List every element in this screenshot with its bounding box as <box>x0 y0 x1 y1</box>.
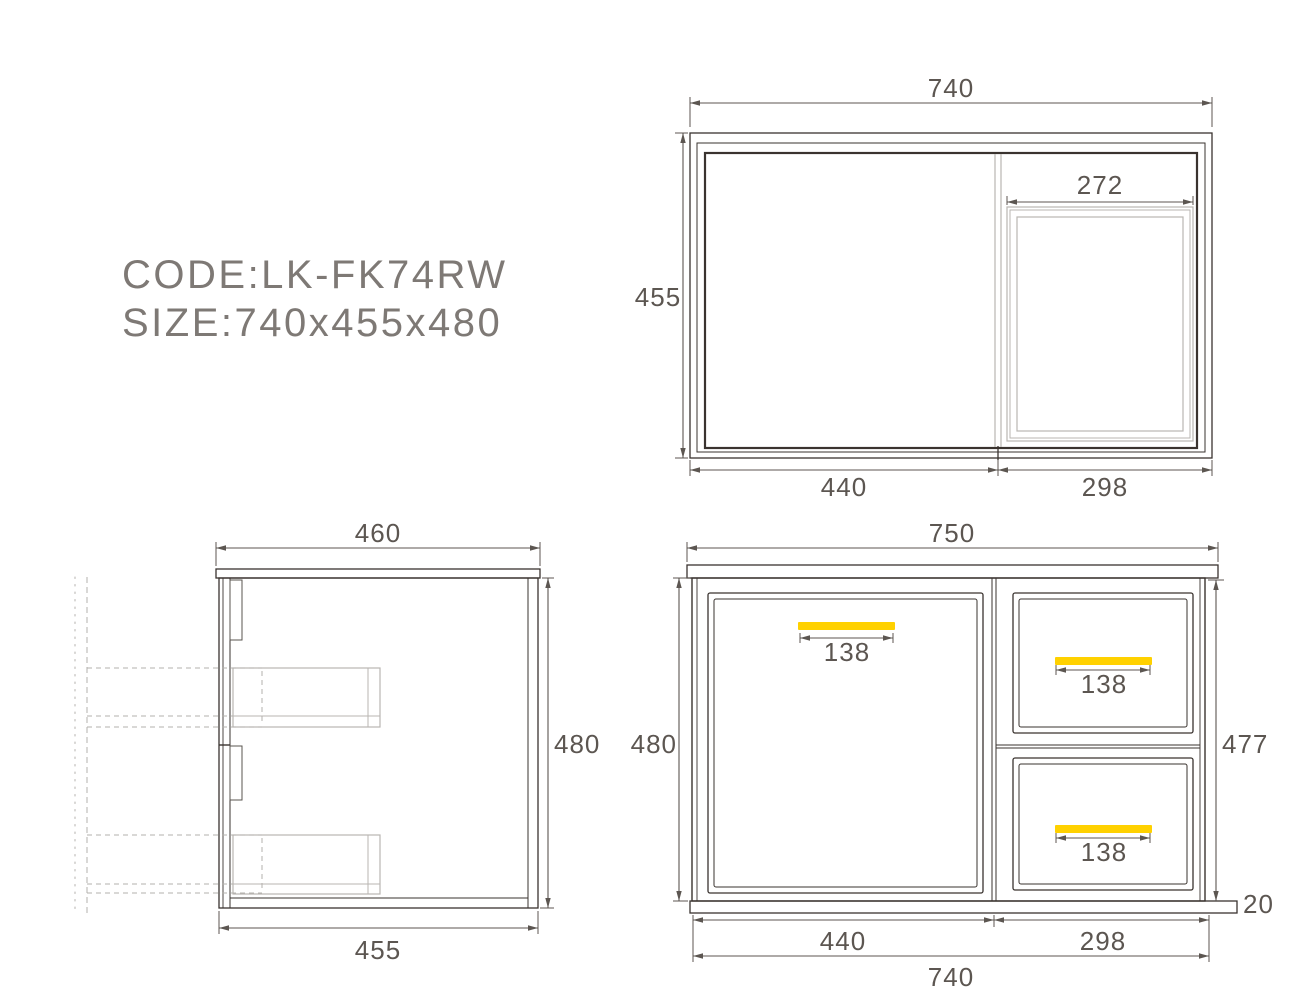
side-view-hinge-top <box>230 580 242 640</box>
front-view-countertop-value: 750 <box>929 518 975 548</box>
front-view-door-width-value: 440 <box>820 926 866 956</box>
top-view-sink-cutout <box>1007 207 1193 441</box>
side-view-drawer-box-upper <box>233 668 380 727</box>
top-view-edge-outline <box>697 143 1205 452</box>
front-view-drawer-rail <box>996 745 1200 748</box>
top-view-right-section-value: 298 <box>1082 472 1128 502</box>
front-view-right-height-value: 477 <box>1222 729 1268 759</box>
front-view-right-height-dimension: 477 <box>1208 580 1268 901</box>
side-view-drawer-box-lower <box>233 835 380 894</box>
side-view-bottom-depth-value: 455 <box>355 935 401 965</box>
front-view-left-height-value: 480 <box>631 729 677 759</box>
drawer2-handle-value: 138 <box>1081 837 1127 867</box>
top-view-depth-dimension: 455 <box>635 133 688 458</box>
drawer2-handle-dimension: 138 <box>1056 833 1150 867</box>
drawer2-handle <box>1055 825 1152 833</box>
top-view-sink-dimension: 272 <box>1007 170 1193 205</box>
front-view-bottom-panel <box>690 901 1237 913</box>
side-view-height-value: 480 <box>554 729 600 759</box>
top-view-width-value: 740 <box>928 73 974 103</box>
side-view-open-door-projection <box>75 577 262 913</box>
front-view-drawer2-panel <box>1013 758 1193 890</box>
top-view-countertop-outline <box>690 133 1212 458</box>
top-view-section-divider <box>995 154 1001 447</box>
product-size-text: SIZE:740x455x480 <box>122 301 502 345</box>
front-view-drawers-width-value: 298 <box>1080 926 1126 956</box>
front-view-countertop <box>687 565 1218 578</box>
side-view-hinge-bottom <box>230 746 242 800</box>
front-view: 750 480 477 20 138 138 <box>631 518 1274 992</box>
side-view-bottom-depth-dimension: 455 <box>219 911 538 965</box>
side-view: 460 480 455 <box>75 518 600 965</box>
top-view-depth-value: 455 <box>635 282 681 312</box>
product-label: CODE:LK-FK74RW SIZE:740x455x480 <box>122 253 507 345</box>
side-view-body <box>219 578 538 908</box>
front-view-bottom-dimensions: 440 298 740 <box>693 915 1209 992</box>
top-view: 740 455 272 440 298 <box>635 73 1212 502</box>
front-view-left-height-dimension: 480 <box>631 578 690 901</box>
top-view-sink-value: 272 <box>1077 170 1123 200</box>
side-view-height-dimension: 480 <box>540 578 600 908</box>
side-view-top-depth-value: 460 <box>355 518 401 548</box>
top-view-width-dimension: 740 <box>690 73 1212 127</box>
vanity-technical-drawing: CODE:LK-FK74RW SIZE:740x455x480 740 <box>0 0 1299 996</box>
door-handle-dimension: 138 <box>800 633 893 667</box>
drawer1-handle-dimension: 138 <box>1056 665 1150 699</box>
drawing-canvas: CODE:LK-FK74RW SIZE:740x455x480 740 <box>0 0 1299 996</box>
door-handle-value: 138 <box>824 637 870 667</box>
front-view-total-width-value: 740 <box>928 962 974 992</box>
front-view-body <box>692 578 1205 901</box>
side-view-countertop <box>216 569 540 578</box>
front-view-base-height-value: 20 <box>1243 889 1274 919</box>
front-view-countertop-dimension: 750 <box>687 518 1218 562</box>
side-view-top-depth-dimension: 460 <box>216 518 540 566</box>
drawer1-handle-value: 138 <box>1081 669 1127 699</box>
top-view-section-dimensions: 440 298 <box>690 460 1212 502</box>
product-code-text: CODE:LK-FK74RW <box>122 253 507 297</box>
front-view-door-drawer-seam <box>992 578 996 901</box>
door-handle <box>798 622 895 630</box>
top-view-left-section-value: 440 <box>821 472 867 502</box>
drawer1-handle <box>1055 657 1152 665</box>
